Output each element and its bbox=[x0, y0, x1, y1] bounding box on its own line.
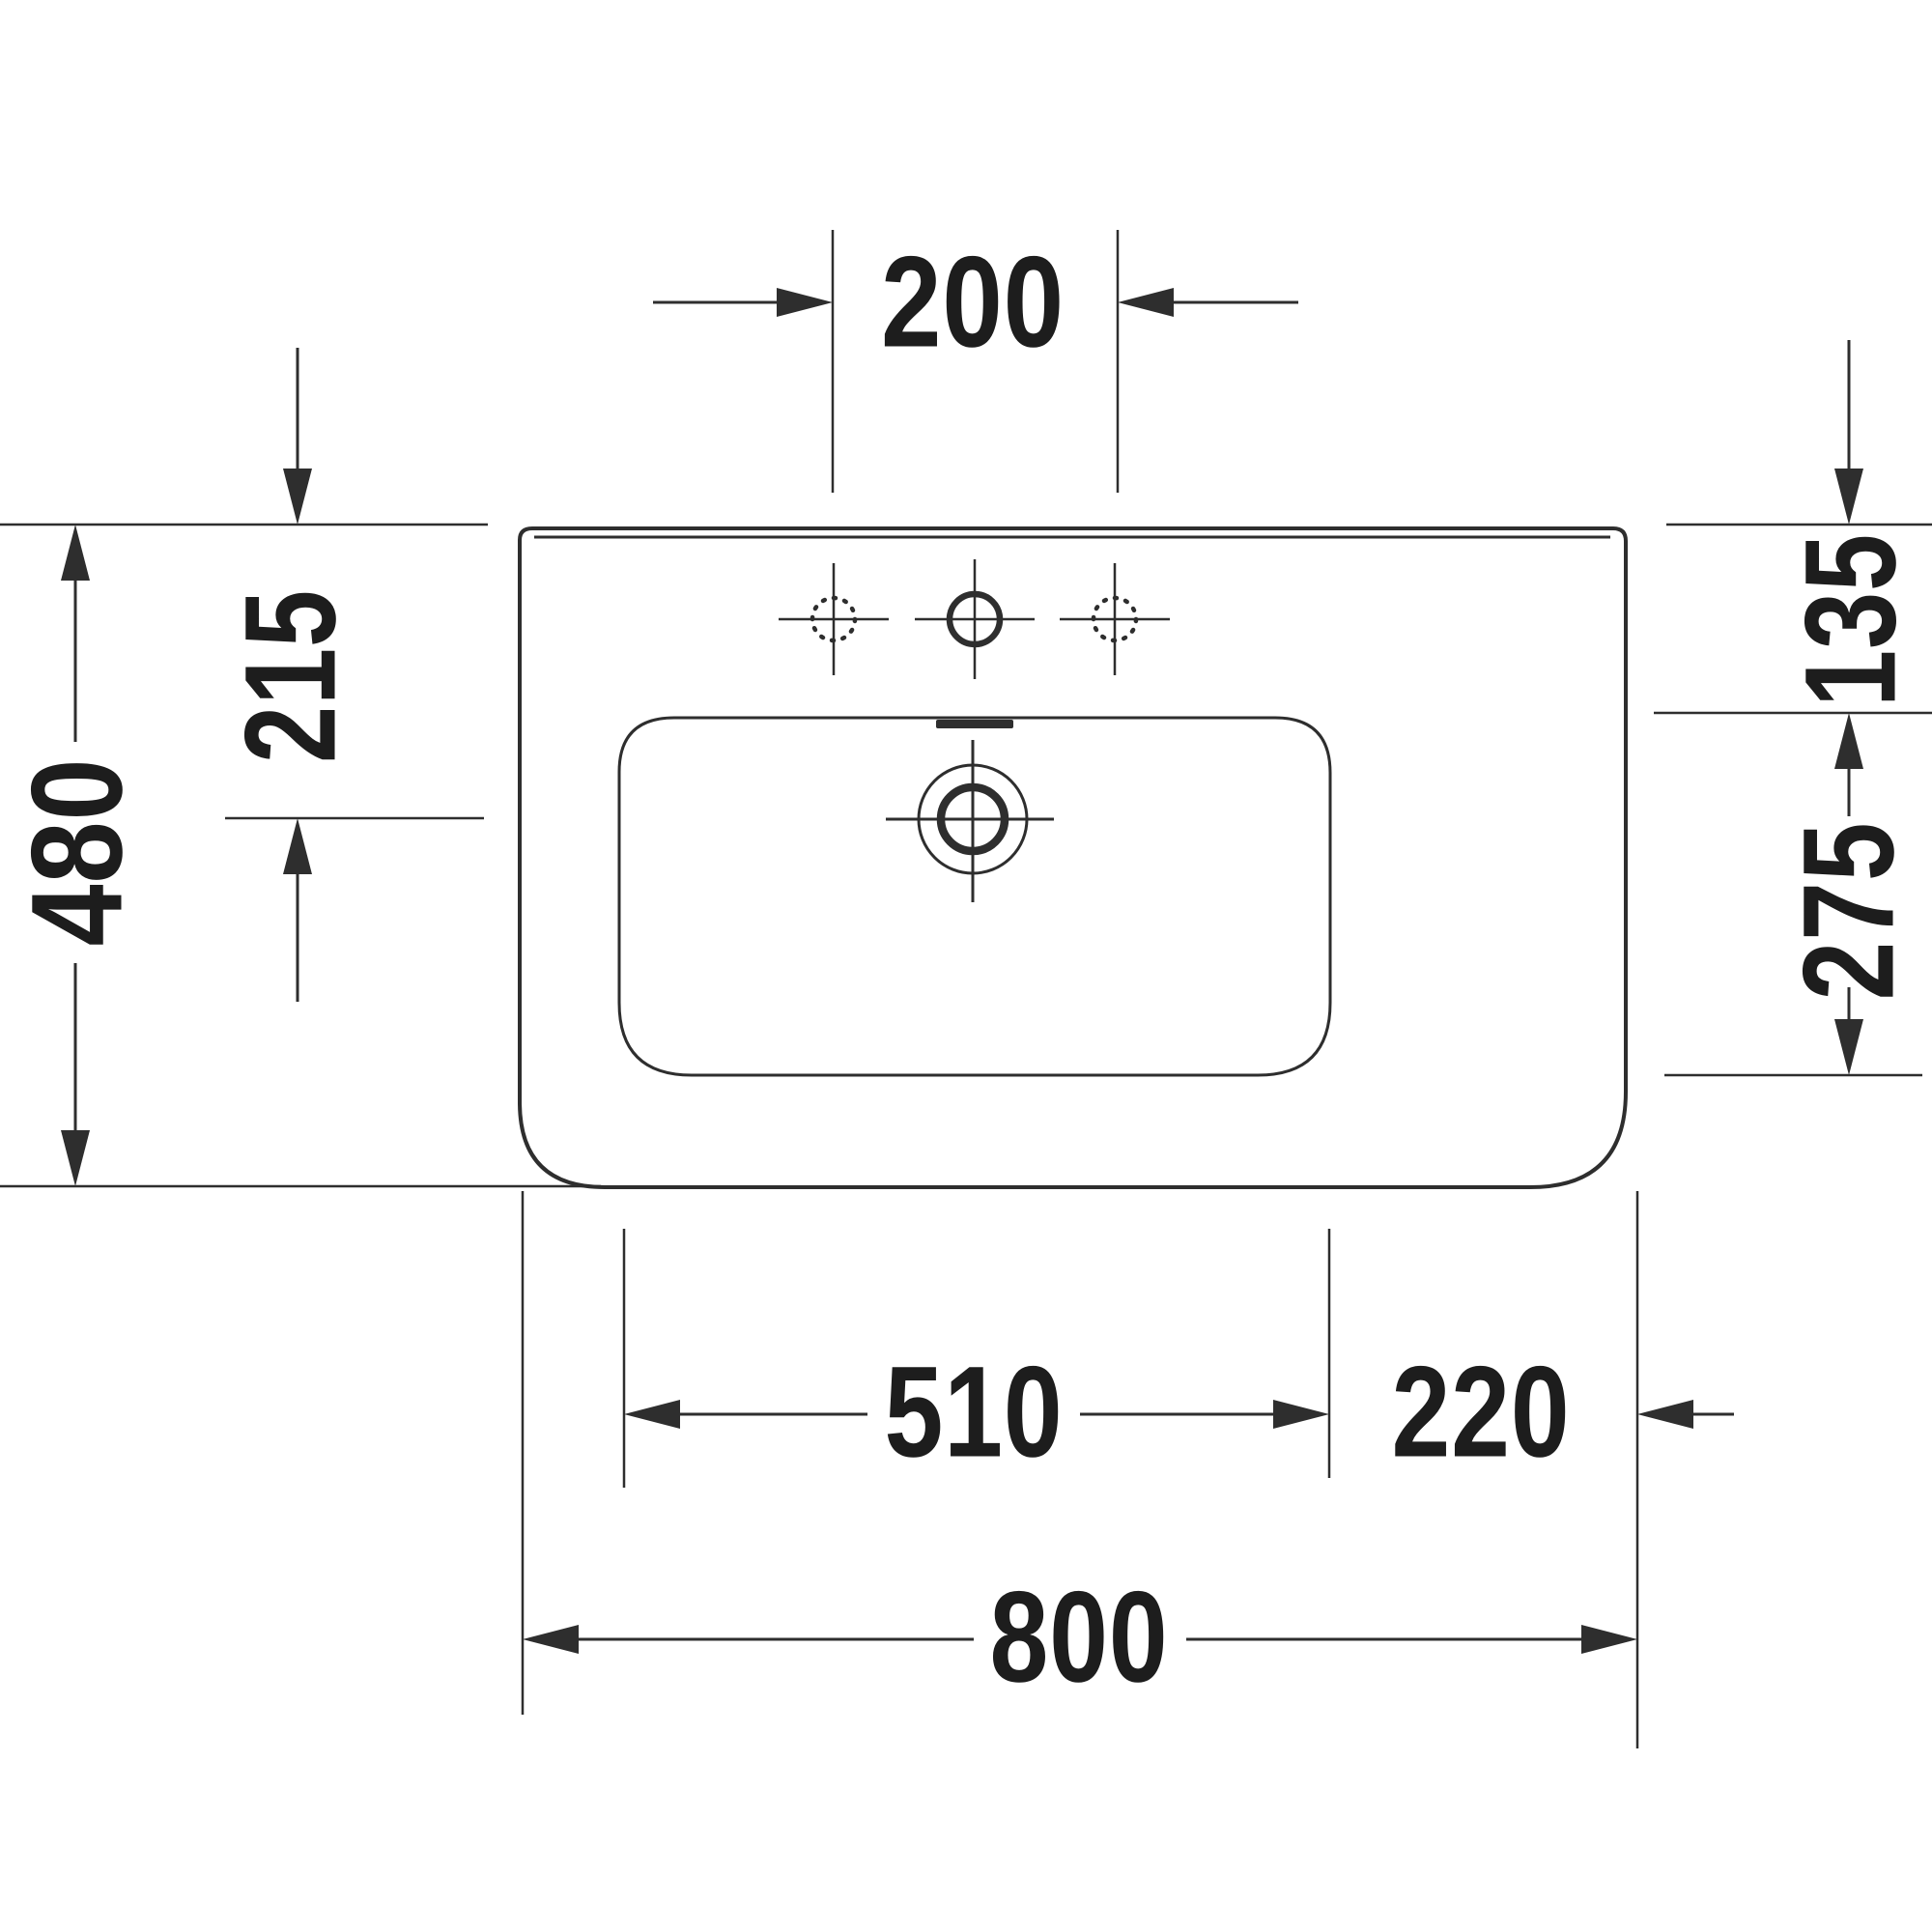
dim-220-label: 220 bbox=[1392, 1341, 1571, 1485]
dim-800-arrowhead-left bbox=[523, 1625, 579, 1654]
dim-510-arrowhead-right bbox=[1273, 1400, 1329, 1429]
dim-800-arrowhead-right bbox=[1581, 1625, 1637, 1654]
tap-hole-left bbox=[779, 563, 889, 675]
dim-215-arrowhead-bottom bbox=[283, 818, 312, 874]
dim-200-label: 200 bbox=[881, 231, 1065, 375]
dim-135: 135 bbox=[1654, 340, 1932, 713]
tap-hole-center bbox=[915, 559, 1035, 679]
drain bbox=[886, 740, 1054, 902]
bowl-outline bbox=[619, 718, 1330, 1075]
dim-480-label: 480 bbox=[6, 758, 150, 947]
dim-480-arrowhead-top bbox=[61, 525, 90, 581]
dim-215: 215 bbox=[219, 348, 485, 1002]
dim-220-arrowhead-right bbox=[1637, 1400, 1693, 1429]
tap-hole-right bbox=[1060, 563, 1170, 675]
basin-body bbox=[520, 528, 1626, 1187]
dim-275-arrowhead-bottom bbox=[1834, 1019, 1863, 1075]
dim-200: 200 bbox=[653, 230, 1298, 493]
drawing-canvas: 200 135 275 480 215 bbox=[0, 0, 1932, 1932]
dim-135-label: 135 bbox=[1779, 533, 1923, 707]
dim-510: 510 bbox=[523, 1191, 1329, 1715]
dim-200-arrowhead-left bbox=[777, 288, 833, 317]
dim-275-label: 275 bbox=[1777, 822, 1921, 1001]
basin-outer-outline bbox=[520, 528, 1626, 1187]
washbasin-dimension-drawing: 200 135 275 480 215 bbox=[0, 0, 1932, 1932]
dim-200-arrowhead-right bbox=[1118, 288, 1174, 317]
dim-480-arrowhead-bottom bbox=[61, 1130, 90, 1186]
dim-800-label: 800 bbox=[990, 1566, 1169, 1710]
dim-510-arrowhead-left bbox=[624, 1400, 680, 1429]
dim-510-label: 510 bbox=[885, 1341, 1064, 1485]
dim-800: 800 bbox=[523, 1566, 1637, 1710]
dim-220: 220 bbox=[1392, 1191, 1735, 1748]
overflow-slot bbox=[936, 720, 1013, 728]
dim-275: 275 bbox=[1664, 713, 1922, 1075]
dim-135-arrowhead-top bbox=[1834, 469, 1863, 525]
dim-275-arrowhead-top bbox=[1834, 713, 1863, 769]
dim-215-arrowhead-top bbox=[283, 469, 312, 525]
dim-215-label: 215 bbox=[219, 589, 363, 763]
